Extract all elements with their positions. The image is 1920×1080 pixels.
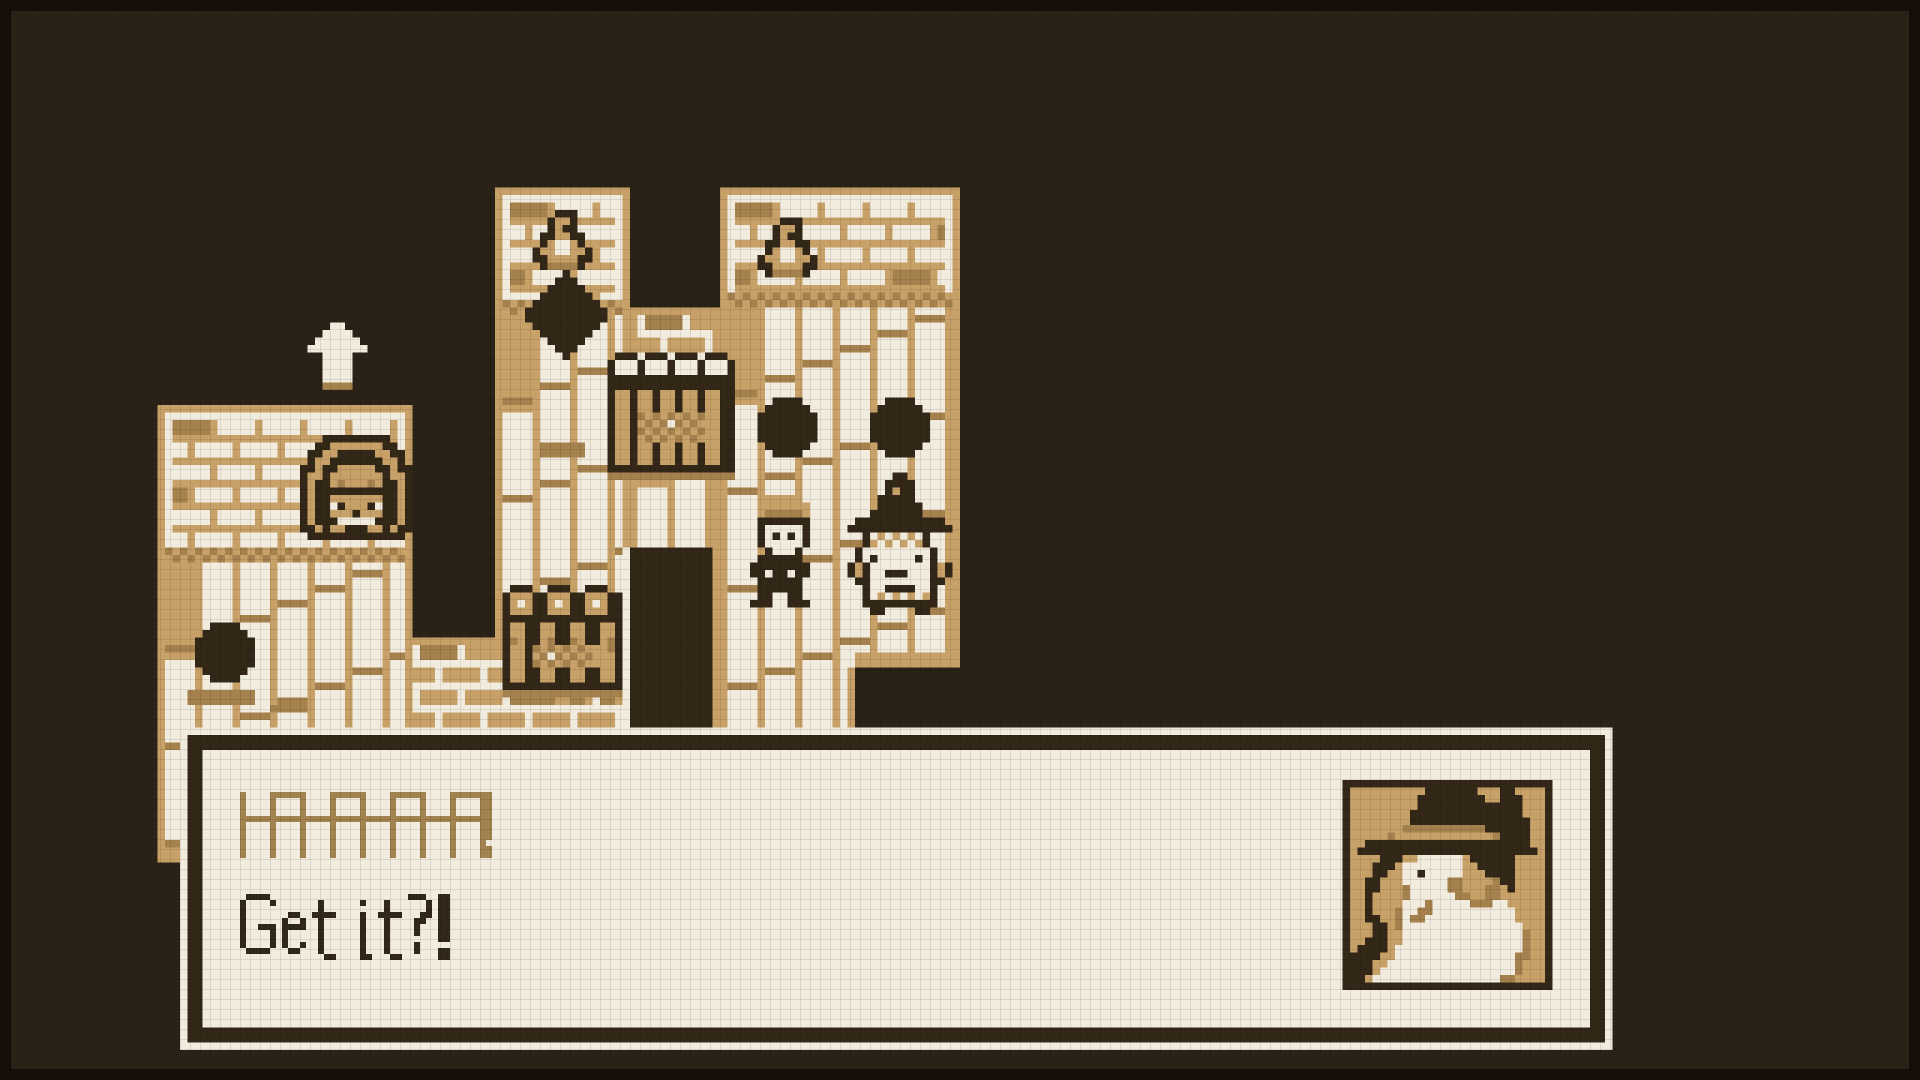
diamond-marker xyxy=(525,270,607,365)
door-face xyxy=(300,435,413,540)
window-prisoners-lower xyxy=(503,585,623,705)
hole-left xyxy=(195,620,255,680)
npc-witch xyxy=(848,472,953,615)
window-prisoners-upper xyxy=(608,353,736,481)
bird-right-tower xyxy=(758,218,814,276)
cursor-arrow xyxy=(305,320,367,388)
npc-cap-man xyxy=(748,495,816,610)
hole-right-1 xyxy=(755,396,817,458)
bird-mid-tower xyxy=(533,210,591,272)
hole-right-2 xyxy=(868,398,930,460)
dark-doorway xyxy=(623,548,723,728)
dialog-portrait-old-man xyxy=(1343,785,1553,993)
game-screen: HAHAHAHA! Get it?! xyxy=(0,0,1920,1080)
dialog-box[interactable]: HAHAHAHA! Get it?! xyxy=(183,728,1608,1053)
